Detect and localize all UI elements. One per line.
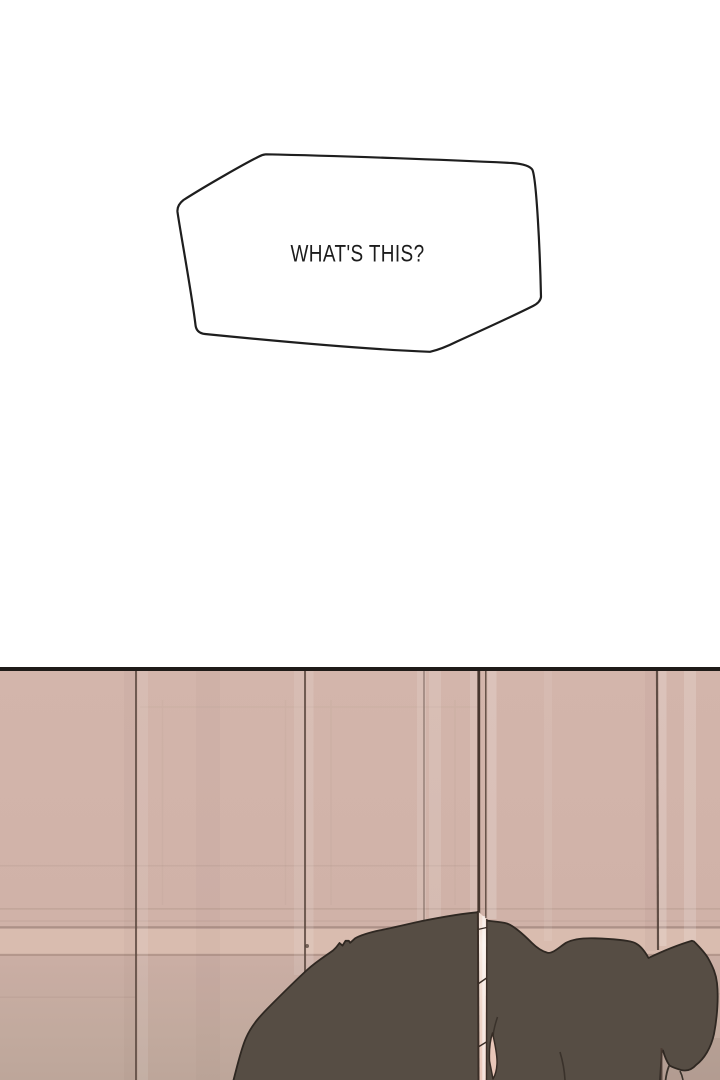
svg-text:WHAT'S THIS?: WHAT'S THIS? bbox=[291, 241, 425, 268]
